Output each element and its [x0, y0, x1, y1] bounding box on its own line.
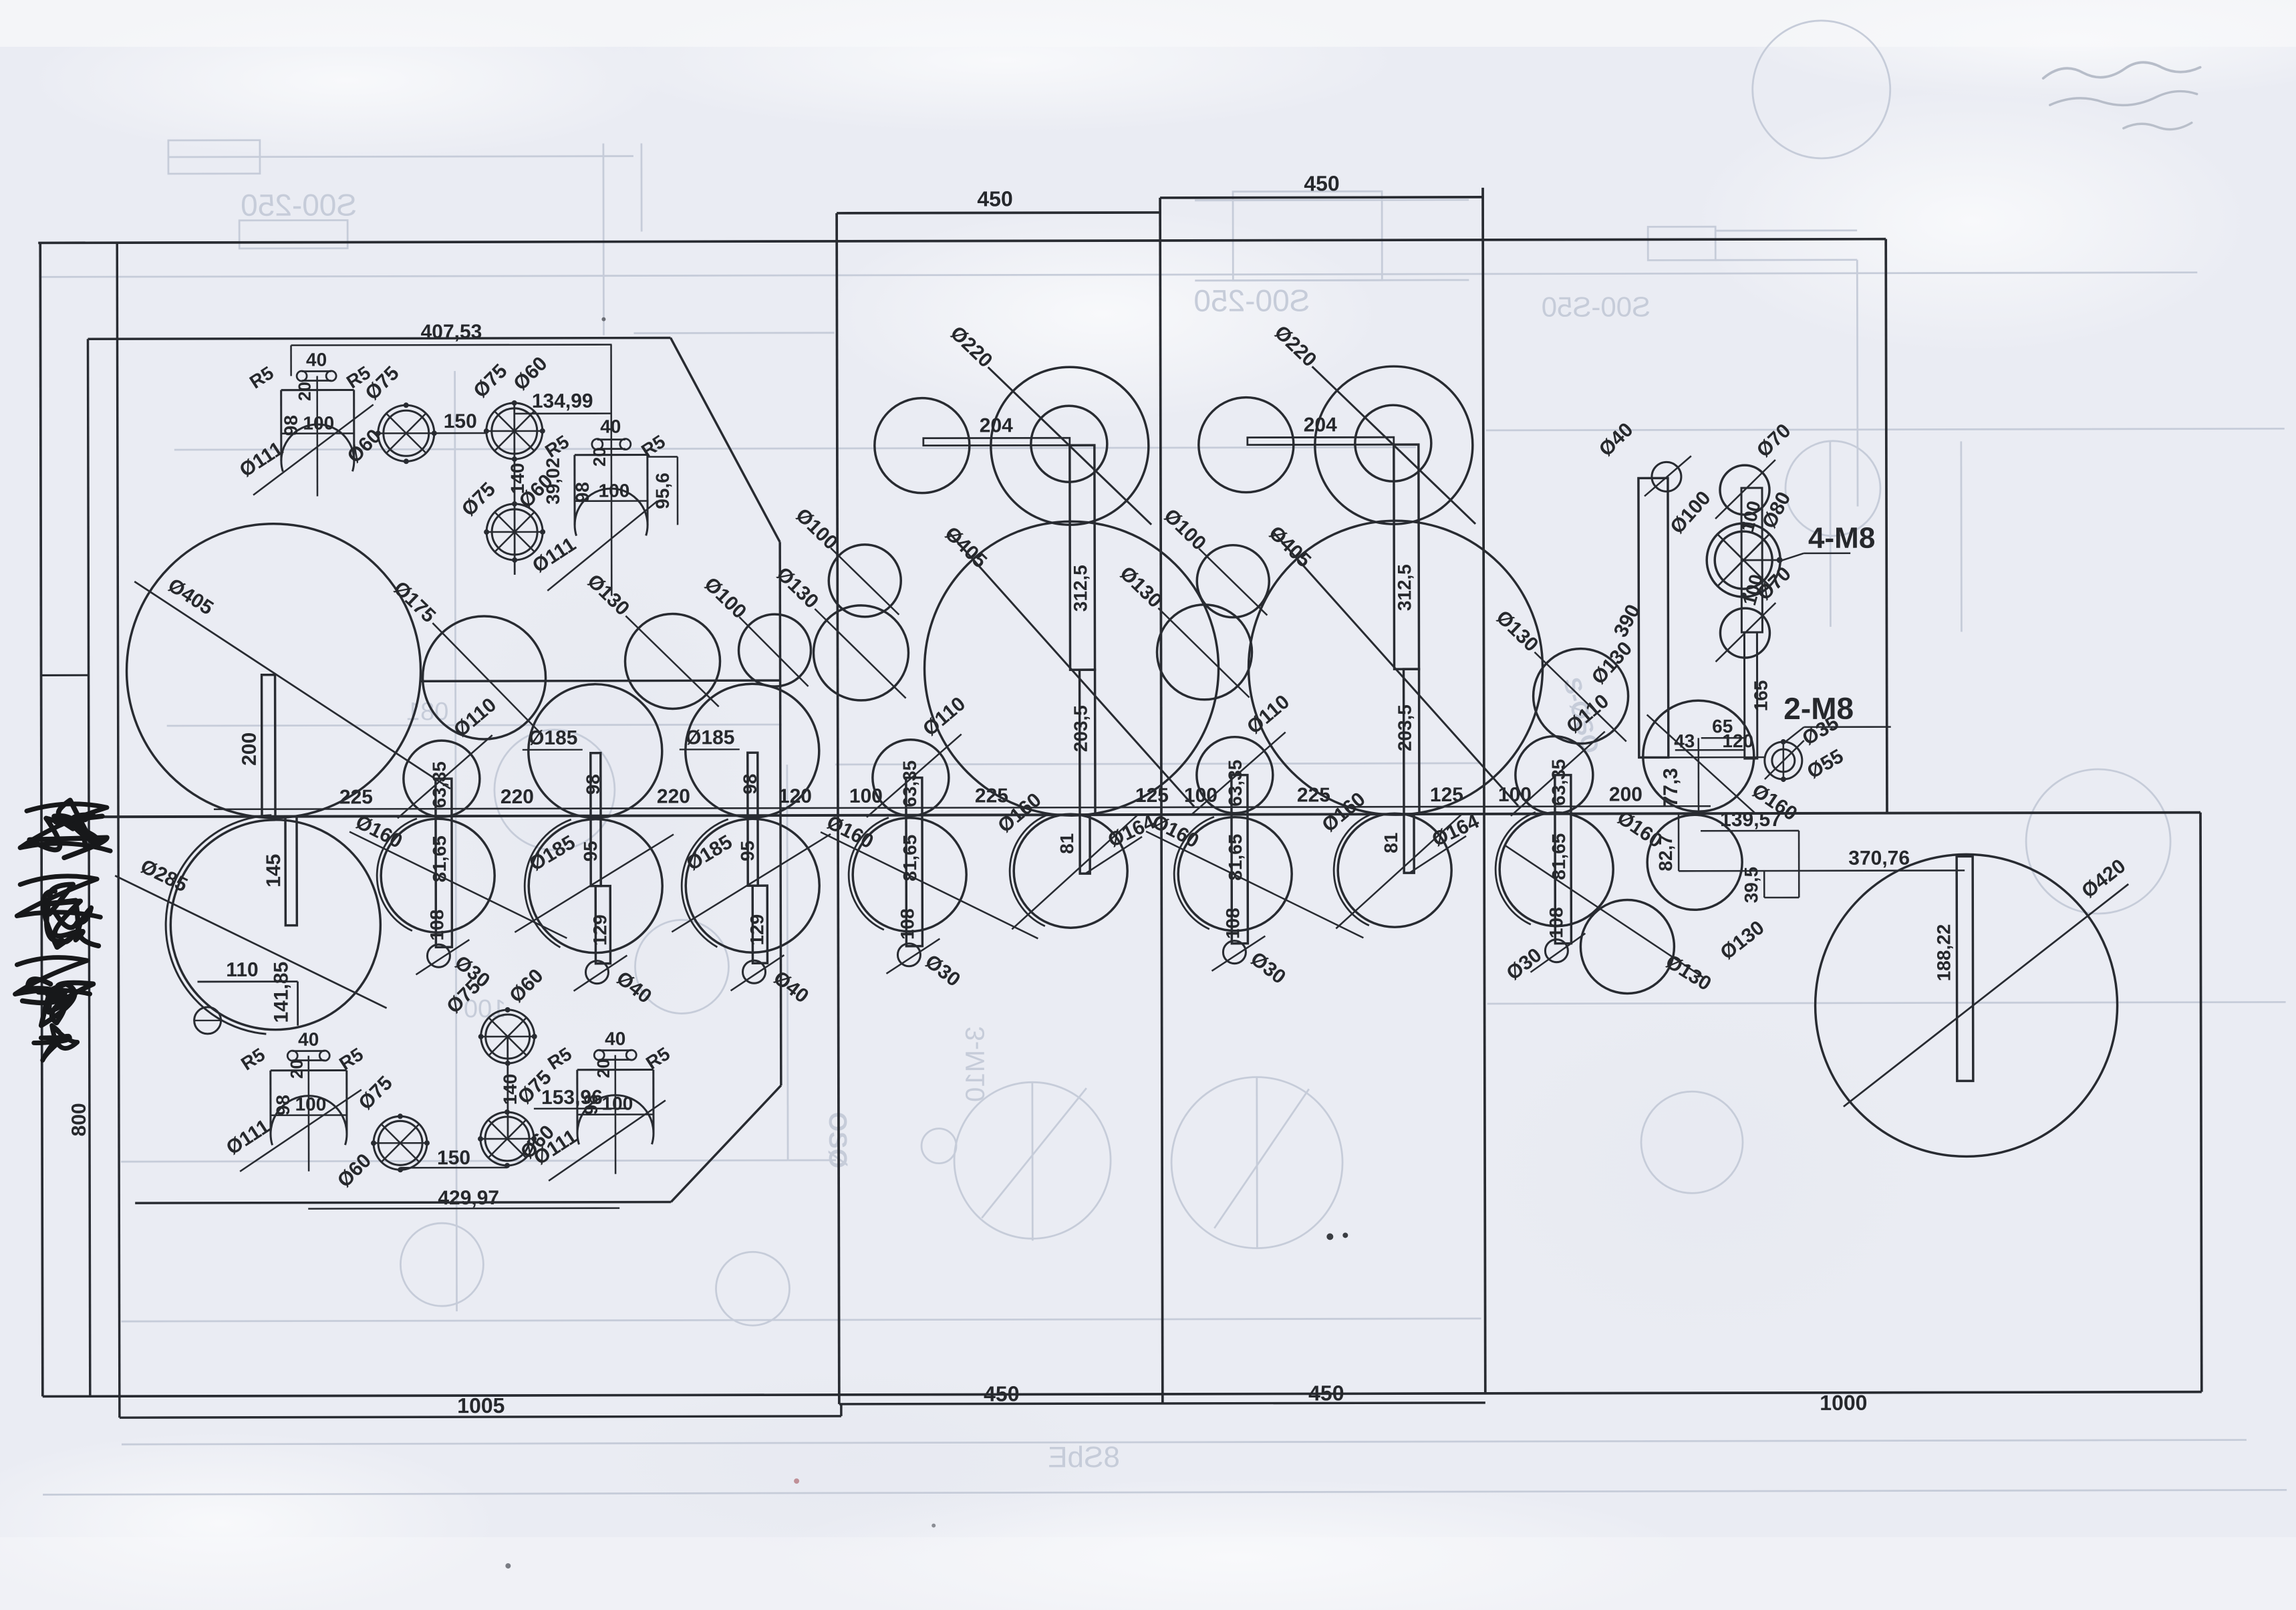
svg-text:134,99: 134,99 — [532, 390, 593, 412]
svg-text:108: 108 — [1222, 908, 1243, 939]
svg-text:39,02: 39,02 — [543, 458, 563, 505]
svg-text:370,76: 370,76 — [1848, 847, 1910, 869]
svg-text:125: 125 — [1135, 785, 1169, 807]
svg-text:4-M8: 4-M8 — [1808, 522, 1875, 555]
svg-text:220: 220 — [657, 785, 690, 807]
svg-text:63,35: 63,35 — [899, 761, 920, 807]
svg-text:150: 150 — [444, 410, 477, 432]
svg-text:95: 95 — [580, 841, 601, 861]
svg-text:140: 140 — [500, 1074, 521, 1105]
svg-text:63,35: 63,35 — [1548, 759, 1569, 806]
svg-text:1000: 1000 — [1820, 1391, 1867, 1415]
svg-text:203,5: 203,5 — [1395, 704, 1415, 751]
svg-text:98: 98 — [581, 1094, 601, 1115]
svg-text:81: 81 — [1056, 833, 1077, 854]
svg-text:95: 95 — [737, 841, 758, 861]
svg-text:450: 450 — [1308, 1381, 1344, 1405]
svg-text:200: 200 — [1609, 783, 1642, 805]
svg-text:81,65: 81,65 — [1225, 834, 1246, 881]
svg-text:63,35: 63,35 — [1225, 760, 1246, 807]
svg-text:165: 165 — [1751, 680, 1771, 712]
svg-text:125: 125 — [1430, 784, 1463, 806]
svg-text:129: 129 — [589, 914, 610, 946]
svg-text:150: 150 — [437, 1147, 470, 1169]
svg-text:40: 40 — [605, 1029, 625, 1049]
svg-text:145: 145 — [263, 854, 285, 888]
svg-text:108: 108 — [426, 910, 447, 941]
svg-text:S00-S50: S00-S50 — [1542, 291, 1651, 322]
svg-text:200: 200 — [239, 732, 261, 766]
svg-text:98: 98 — [572, 482, 593, 503]
svg-text:141,85: 141,85 — [270, 962, 292, 1023]
svg-text:98: 98 — [273, 1095, 293, 1115]
svg-text:188,22: 188,22 — [1933, 924, 1954, 982]
svg-text:429,97: 429,97 — [438, 1187, 499, 1209]
svg-text:108: 108 — [897, 908, 917, 940]
svg-text:204: 204 — [980, 414, 1013, 436]
svg-text:204: 204 — [1304, 414, 1337, 436]
svg-text:203,5: 203,5 — [1070, 705, 1091, 752]
svg-text:40: 40 — [600, 416, 621, 437]
svg-text:100: 100 — [599, 481, 630, 501]
svg-text:225: 225 — [975, 785, 1008, 807]
svg-text:20: 20 — [593, 1059, 613, 1078]
svg-text:407,53: 407,53 — [421, 321, 482, 343]
svg-text:S00-250: S00-250 — [1193, 283, 1310, 317]
svg-text:40: 40 — [298, 1029, 319, 1050]
svg-text:S00-250: S00-250 — [241, 187, 357, 222]
svg-text:3-M10: 3-M10 — [961, 1026, 990, 1101]
svg-text:108: 108 — [1546, 907, 1566, 938]
svg-text:81,65: 81,65 — [899, 835, 920, 882]
svg-text:100: 100 — [295, 1094, 327, 1115]
svg-text:Ø185: Ø185 — [529, 727, 577, 749]
svg-text:450: 450 — [984, 1381, 1019, 1405]
svg-text:800: 800 — [68, 1103, 90, 1136]
svg-text:450: 450 — [977, 186, 1012, 211]
svg-text:220: 220 — [500, 786, 534, 808]
svg-text:100: 100 — [602, 1093, 633, 1114]
svg-text:98: 98 — [583, 774, 603, 795]
svg-text:63,35: 63,35 — [429, 761, 450, 808]
svg-text:Ø185: Ø185 — [686, 726, 734, 749]
svg-text:OSØ: OSØ — [823, 1112, 851, 1169]
svg-text:129: 129 — [746, 914, 767, 946]
svg-text:98: 98 — [740, 774, 760, 795]
svg-text:312,5: 312,5 — [1394, 564, 1415, 611]
svg-text:225: 225 — [339, 786, 373, 808]
svg-text:100: 100 — [303, 413, 334, 434]
svg-text:81: 81 — [1381, 833, 1401, 853]
svg-text:20: 20 — [589, 447, 609, 466]
svg-text:81,65: 81,65 — [429, 835, 450, 882]
svg-text:77,3: 77,3 — [1660, 768, 1682, 807]
svg-text:98: 98 — [281, 415, 301, 436]
svg-text:450: 450 — [1304, 171, 1339, 195]
svg-text:82,7: 82,7 — [1655, 835, 1676, 871]
svg-text:40: 40 — [306, 350, 327, 370]
svg-text:20: 20 — [287, 1059, 307, 1079]
svg-text:8SbE: 8SbE — [1048, 1441, 1120, 1474]
svg-text:20: 20 — [295, 382, 315, 401]
svg-text:110: 110 — [226, 959, 258, 981]
svg-text:1005: 1005 — [457, 1393, 505, 1418]
svg-text:312,5: 312,5 — [1070, 565, 1091, 612]
svg-text:39,5: 39,5 — [1741, 867, 1761, 904]
svg-text:81,65: 81,65 — [1548, 833, 1569, 880]
svg-text:225: 225 — [1297, 784, 1330, 806]
